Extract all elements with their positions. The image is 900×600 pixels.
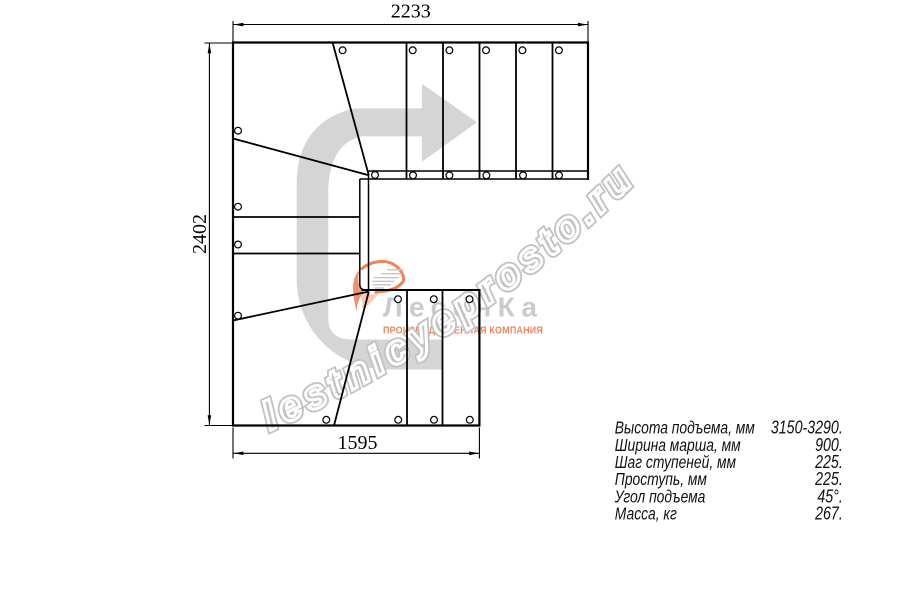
svg-text:2402: 2402 xyxy=(189,214,211,254)
svg-text:267.: 267. xyxy=(814,504,843,524)
svg-text:2233: 2233 xyxy=(391,1,431,23)
svg-text:1595: 1595 xyxy=(338,432,378,454)
svg-text:Масса, кг: Масса, кг xyxy=(615,504,677,524)
